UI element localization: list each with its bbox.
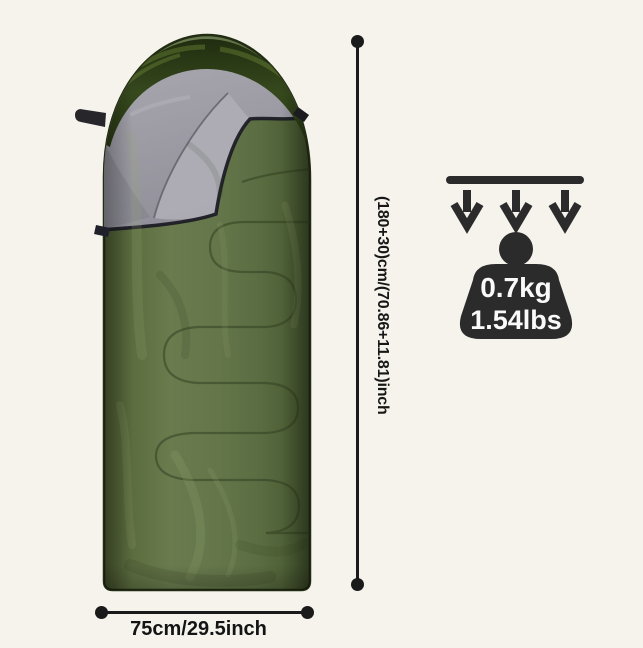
weight-badge: 0.7kg 1.54lbs <box>440 168 590 348</box>
height-dimension-line <box>356 41 359 585</box>
width-dimension-label: 75cm/29.5inch <box>92 618 305 641</box>
sleeping-bag-illustration <box>70 25 330 605</box>
weight-lbs-label: 1.54lbs <box>470 305 562 335</box>
weight-kg-label: 0.7kg <box>480 272 552 303</box>
hang-loop <box>75 109 106 127</box>
down-arrows-icon <box>454 190 578 226</box>
height-dimension-label: (180+30)cm/(70.86+11.81)inch <box>373 196 392 415</box>
product-image: (180+30)cm/(70.86+11.81)inch 75cm/29.5in… <box>0 0 643 648</box>
width-dimension-line <box>101 611 308 614</box>
press-bar-icon <box>446 176 584 184</box>
height-line-bottom-dot <box>351 578 364 591</box>
bottom-shading <box>104 565 310 593</box>
edge-shading <box>104 33 310 593</box>
height-line-top-dot <box>351 35 364 48</box>
